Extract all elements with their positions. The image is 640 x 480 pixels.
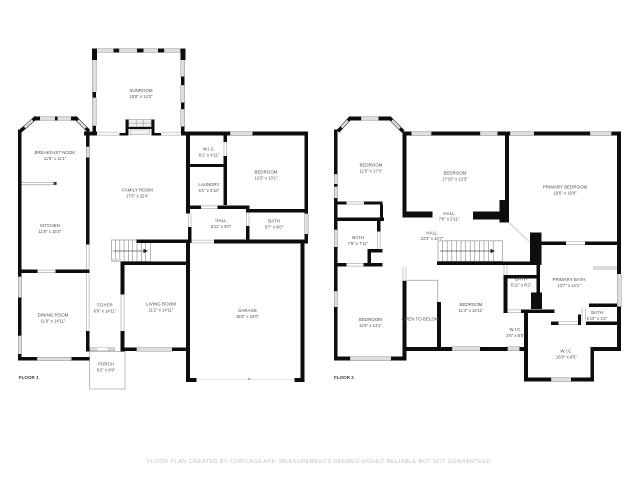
svg-text:HALL: HALL bbox=[443, 211, 455, 216]
svg-text:PRIMARY BATH: PRIMARY BATH bbox=[552, 277, 585, 282]
svg-text:9'7" x 9'0": 9'7" x 9'0" bbox=[265, 225, 284, 230]
svg-text:7'8" x 2'11": 7'8" x 2'11" bbox=[439, 217, 460, 222]
svg-text:BATH: BATH bbox=[515, 277, 527, 282]
svg-text:11'4" x 14'11": 11'4" x 14'11" bbox=[459, 308, 484, 313]
svg-text:16'8" x 24'0": 16'8" x 24'0" bbox=[236, 314, 260, 319]
svg-text:BEDROOM: BEDROOM bbox=[443, 171, 466, 176]
svg-text:W.I.C.: W.I.C. bbox=[509, 327, 521, 332]
svg-text:11'2" x 14'11": 11'2" x 14'11" bbox=[149, 308, 174, 313]
svg-text:DINING ROOM: DINING ROOM bbox=[38, 313, 69, 318]
svg-text:16'0" x 9'5": 16'0" x 9'5" bbox=[556, 355, 577, 360]
svg-text:FLOOR 1: FLOOR 1 bbox=[19, 375, 39, 380]
svg-text:23'3" x 10'7": 23'3" x 10'7" bbox=[420, 236, 444, 241]
svg-text:7'8" x 7'11": 7'8" x 7'11" bbox=[348, 241, 369, 246]
svg-text:BEDROOM: BEDROOM bbox=[459, 302, 482, 307]
svg-text:6'0" x 14'11": 6'0" x 14'11" bbox=[94, 309, 117, 314]
svg-text:HALL: HALL bbox=[215, 218, 227, 223]
svg-text:6'1" x 4'11": 6'1" x 4'11" bbox=[199, 153, 220, 158]
svg-text:17'10" x 12'3": 17'10" x 12'3" bbox=[442, 177, 468, 182]
svg-text:11'6" x 11'1": 11'6" x 11'1" bbox=[44, 156, 67, 161]
svg-text:BATH: BATH bbox=[268, 219, 280, 224]
svg-text:6'2" x 6'9": 6'2" x 6'9" bbox=[97, 368, 116, 373]
svg-text:6'10" x 3'2": 6'10" x 3'2" bbox=[587, 316, 608, 321]
svg-text:15'8" x 14'2": 15'8" x 14'2" bbox=[129, 94, 153, 99]
svg-text:5'11" x 8'2": 5'11" x 8'2" bbox=[511, 282, 532, 287]
svg-text:FLOOR PLAN CREATED BY CUBICASA: FLOOR PLAN CREATED BY CUBICASA APP. MEAS… bbox=[147, 459, 493, 465]
svg-text:BEDROOM: BEDROOM bbox=[359, 163, 382, 168]
svg-text:FLOOR 2: FLOOR 2 bbox=[334, 375, 354, 380]
svg-text:11'6" x 14'11": 11'6" x 14'11" bbox=[41, 319, 66, 324]
svg-text:11'9" x 13'1": 11'9" x 13'1" bbox=[359, 323, 382, 328]
svg-text:KITCHEN: KITCHEN bbox=[40, 223, 60, 228]
svg-text:LAUNDRY: LAUNDRY bbox=[198, 182, 219, 187]
svg-text:17'6" x 22'4": 17'6" x 22'4" bbox=[126, 194, 150, 199]
svg-text:BATH: BATH bbox=[352, 235, 364, 240]
svg-text:HALL: HALL bbox=[426, 230, 438, 235]
svg-text:W.I.C.: W.I.C. bbox=[560, 349, 572, 354]
svg-text:PRIMARY BEDROOM: PRIMARY BEDROOM bbox=[543, 185, 588, 190]
svg-text:OPEN TO BELOW: OPEN TO BELOW bbox=[402, 316, 440, 321]
svg-text:13'7" x 14'1": 13'7" x 14'1" bbox=[557, 283, 581, 288]
svg-text:5'11" x 6'0": 5'11" x 6'0" bbox=[211, 224, 232, 229]
svg-text:11'6" x 17'3": 11'6" x 17'3" bbox=[360, 169, 383, 174]
svg-text:W.I.C.: W.I.C. bbox=[203, 147, 215, 152]
svg-text:6'1" x 6'10": 6'1" x 6'10" bbox=[199, 188, 220, 193]
svg-text:BEDROOM: BEDROOM bbox=[359, 317, 382, 322]
svg-text:BREAKFAST NOOK: BREAKFAST NOOK bbox=[35, 150, 76, 155]
svg-text:LIVING ROOM: LIVING ROOM bbox=[146, 302, 176, 307]
svg-text:PORCH: PORCH bbox=[98, 362, 114, 367]
svg-text:GARAGE: GARAGE bbox=[238, 308, 257, 313]
svg-text:FOYER: FOYER bbox=[97, 303, 112, 308]
svg-text:SUNROOM: SUNROOM bbox=[129, 88, 153, 93]
svg-text:19'6" x 18'8": 19'6" x 18'8" bbox=[553, 191, 577, 196]
svg-text:BATH: BATH bbox=[591, 310, 603, 315]
svg-text:11'6" x 15'3": 11'6" x 15'3" bbox=[39, 229, 62, 234]
svg-text:FAMILY ROOM: FAMILY ROOM bbox=[122, 188, 153, 193]
svg-text:2'6" x 6'5": 2'6" x 6'5" bbox=[506, 333, 525, 338]
svg-text:BEDROOM: BEDROOM bbox=[254, 170, 277, 175]
svg-text:12'3" x 13'1": 12'3" x 13'1" bbox=[254, 176, 278, 181]
